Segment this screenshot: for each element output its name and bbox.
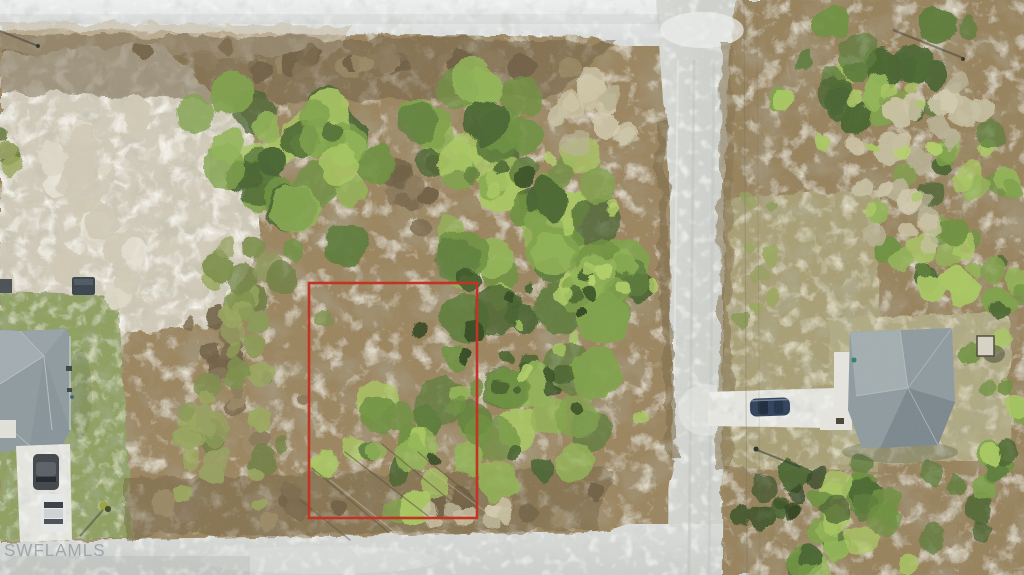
photo-grain: [0, 0, 1024, 575]
aerial-photo: SWFLAMLS: [0, 0, 1024, 575]
watermark: SWFLAMLS: [4, 541, 106, 561]
aerial-scene: [0, 0, 1024, 575]
